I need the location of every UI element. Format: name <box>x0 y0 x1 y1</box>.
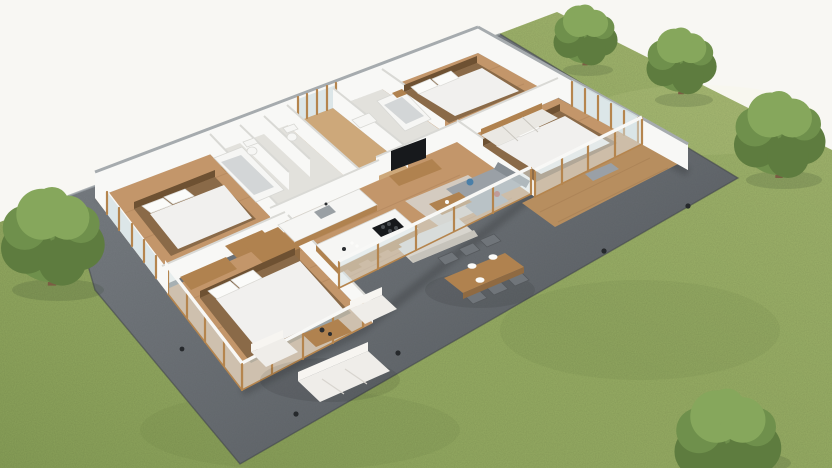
plate <box>489 254 498 260</box>
plate <box>476 277 485 283</box>
floor-plan-render <box>0 0 832 468</box>
scene-canvas <box>0 0 832 468</box>
blue-cushion <box>467 179 474 186</box>
plate <box>468 263 477 269</box>
corner-pier <box>165 260 168 294</box>
toilet <box>247 147 257 155</box>
wc-toilet <box>287 133 297 141</box>
faucet <box>325 203 328 206</box>
